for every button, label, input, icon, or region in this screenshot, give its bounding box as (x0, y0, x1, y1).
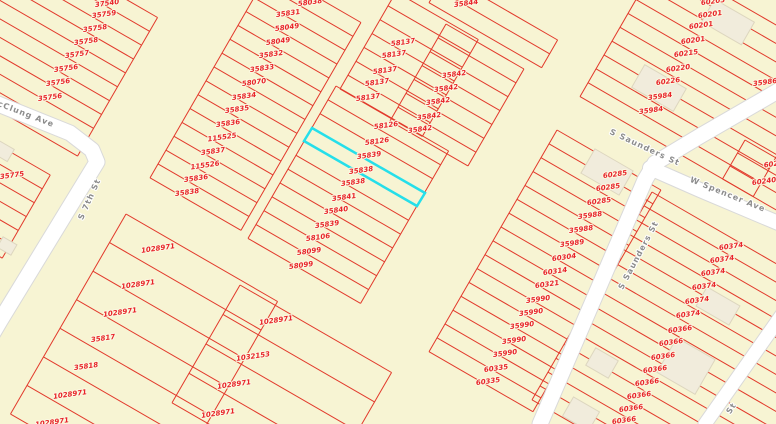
parcel-map-viewport[interactable]: 3754035759357583575835757357563575635756… (0, 0, 776, 424)
parcel-label-602: 602 (763, 160, 776, 170)
parcel-map-canvas[interactable]: 3754035759357583575835757357563575635756… (0, 0, 776, 424)
